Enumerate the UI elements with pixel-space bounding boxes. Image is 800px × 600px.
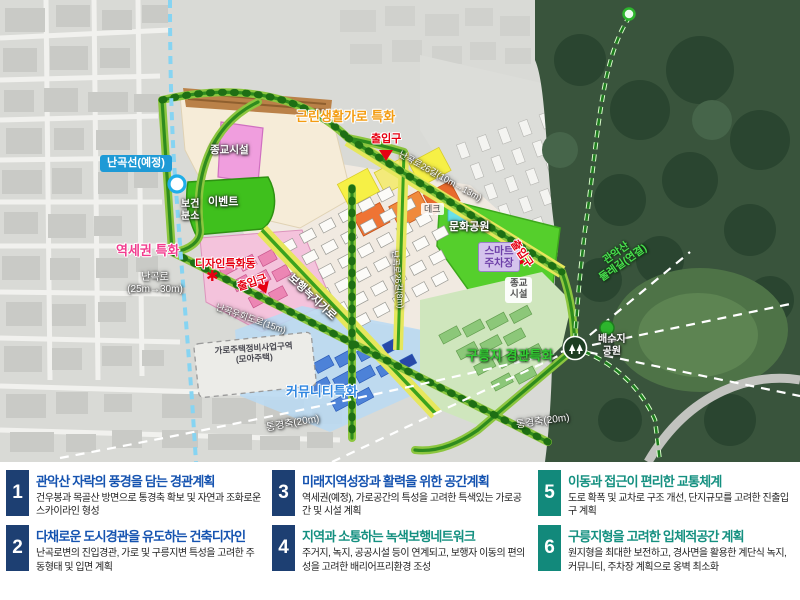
item-desc-1: 건우봉과 목골산 방면으로 통경축 확보 및 자연과 조화로운 스카이라인 형성 <box>36 492 262 518</box>
plan-item-2: 2 다채로운 도시경관을 유도하는 건축디자인 난곡로변의 진입경관, 가로 및… <box>6 525 262 573</box>
legend-panel: 1 관악산 자락의 풍경을 담는 경관계획 건우봉과 목골산 방면으로 통경축 … <box>0 462 800 600</box>
item-desc-2: 난곡로변의 진입경관, 가로 및 구릉지변 특성을 고려한 주동형태 및 입면 … <box>36 547 262 573</box>
item-desc-3: 역세권(예정), 가로공간의 특성을 고려한 특색있는 가로공간 및 시설 계획 <box>302 492 528 518</box>
plan-item-3: 3 미래지역성장과 활력을 위한 공간계획 역세권(예정), 가로공간의 특성을… <box>272 470 528 518</box>
page: 난곡선(예정) 근린생활가로 특화 출입구 종교시설 보건 분소 이벤트 역세권… <box>0 0 800 600</box>
item-number-6: 6 <box>538 525 561 571</box>
item-number-2: 2 <box>6 525 29 571</box>
item-number-5: 5 <box>538 470 561 516</box>
item-title-4: 지역과 소통하는 녹색보행네트워크 <box>302 526 528 545</box>
item-number-1: 1 <box>6 470 29 516</box>
item-title-2: 다채로운 도시경관을 유도하는 건축디자인 <box>36 526 262 545</box>
trail-start-marker <box>624 9 635 20</box>
legend-column-3: 5 이동과 접근이 편리한 교통체계 도로 확폭 및 교차로 구조 개선, 단지… <box>538 470 794 594</box>
item-title-5: 이동과 접근이 편리한 교통체계 <box>568 471 794 490</box>
plan-item-6: 6 구릉지형을 고려한 입체적공간 계획 원지형을 최대한 보전하고, 경사면을… <box>538 525 794 573</box>
legend-column-1: 1 관악산 자락의 풍경을 담는 경관계획 건우봉과 목골산 방면으로 통경축 … <box>6 470 262 594</box>
item-title-3: 미래지역성장과 활력을 위한 공간계획 <box>302 471 528 490</box>
item-number-4: 4 <box>272 525 295 571</box>
item-desc-6: 원지형을 최대한 보전하고, 경사면을 활용한 계단식 녹지, 커뮤니티, 주차… <box>568 547 794 573</box>
trail-node-marker <box>600 321 614 335</box>
item-desc-5: 도로 확폭 및 교차로 구조 개선, 단지규모를 고려한 진출입구 계획 <box>568 492 794 518</box>
station-marker <box>169 176 185 192</box>
item-title-1: 관악산 자락의 풍경을 담는 경관계획 <box>36 471 262 490</box>
plan-item-4: 4 지역과 소통하는 녹색보행네트워크 주거지, 녹지, 공공시설 등이 연계되… <box>272 525 528 573</box>
plan-item-1: 1 관악산 자락의 풍경을 담는 경관계획 건우봉과 목골산 방면으로 통경축 … <box>6 470 262 518</box>
garo-housing-block <box>194 332 317 398</box>
item-number-3: 3 <box>272 470 295 516</box>
plan-item-5: 5 이동과 접근이 편리한 교통체계 도로 확폭 및 교차로 구조 개선, 단지… <box>538 470 794 518</box>
master-plan-map: 난곡선(예정) 근린생활가로 특화 출입구 종교시설 보건 분소 이벤트 역세권… <box>0 0 800 462</box>
item-desc-4: 주거지, 녹지, 공공시설 등이 연계되고, 보행자 이동의 편의성을 고려한 … <box>302 547 528 573</box>
item-title-6: 구릉지형을 고려한 입체적공간 계획 <box>568 526 794 545</box>
roundabout-marker <box>564 337 587 360</box>
map-graphic <box>0 0 800 462</box>
legend-column-2: 3 미래지역성장과 활력을 위한 공간계획 역세권(예정), 가로공간의 특성을… <box>272 470 528 594</box>
